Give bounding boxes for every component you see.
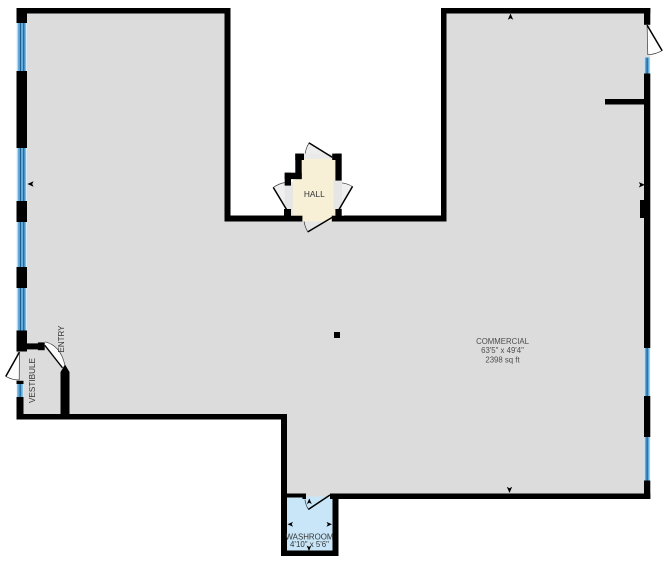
svg-text:COMMERCIAL: COMMERCIAL [476, 337, 530, 346]
svg-text:ENTRY: ENTRY [57, 325, 66, 353]
svg-text:4'10" x 5'6": 4'10" x 5'6" [290, 540, 329, 549]
svg-text:HALL: HALL [304, 189, 325, 199]
svg-text:2398 sq ft: 2398 sq ft [485, 355, 520, 364]
svg-text:63'5" x 49'4": 63'5" x 49'4" [481, 346, 524, 355]
svg-text:VESTIBULE: VESTIBULE [28, 357, 37, 403]
